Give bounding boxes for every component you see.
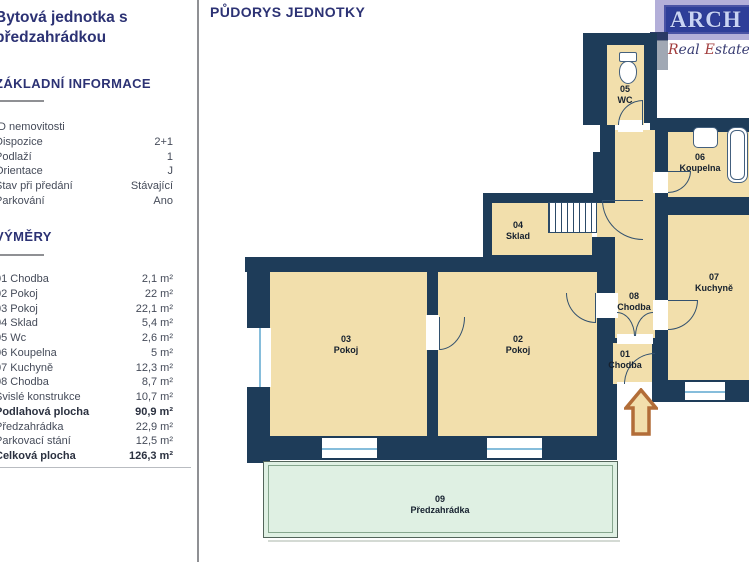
page: Bytová jednotka s předzahrádkou ZÁKLADNÍ… (0, 0, 749, 562)
info-row: OrientaceJ (0, 164, 173, 179)
door-gap (653, 172, 668, 193)
vertical-divider (197, 0, 199, 562)
area-row: 01 Chodba2,1 m² (0, 272, 173, 287)
room-label-kitchen: 07Kuchyně (684, 272, 744, 293)
area-row: 04 Sklad5,4 m² (0, 316, 173, 331)
room-label-garden: 09Předzahrádka (380, 494, 500, 515)
stairs (548, 202, 597, 233)
basic-info-heading: ZÁKLADNÍ INFORMACE (0, 76, 195, 91)
info-row: ParkováníAno (0, 194, 173, 209)
areas-table: 01 Chodba2,1 m² 02 Pokoj22 m² 03 Pokoj22… (0, 272, 173, 464)
room-label-storage: 04Sklad (488, 220, 548, 241)
basic-info-table: ID nemovitosti Dispozice2+1 Podlaží1 Ori… (0, 120, 173, 209)
bathtub-inner (730, 130, 745, 180)
listing-title-line1: Bytová jednotka s (0, 8, 195, 28)
area-row: 02 Pokoj22 m² (0, 287, 173, 302)
area-row: Předzahrádka22,9 m² (0, 420, 173, 435)
agency-logo: ARCH (664, 5, 749, 34)
room-label-bathroom: 06Koupelna (670, 152, 730, 173)
room-label-wc: 05WC (595, 84, 655, 105)
area-row: 06 Koupelna5 m² (0, 346, 173, 361)
window (322, 438, 377, 458)
area-row: 05 Wc2,6 m² (0, 331, 173, 346)
area-row: 07 Kuchyně12,3 m² (0, 361, 173, 376)
area-row: Svislé konstrukce10,7 m² (0, 390, 173, 405)
heading-underline (0, 100, 44, 102)
listing-title-line2: předzahrádkou (0, 28, 195, 48)
room-kitchen (668, 215, 749, 380)
wall (643, 33, 657, 123)
room-label-02: 02Pokoj (488, 334, 548, 355)
wall (427, 272, 438, 436)
agency-tagline: RealEstateP (668, 42, 749, 58)
info-row: Podlaží1 (0, 150, 173, 165)
room-label-hall-08: 08Chodba (604, 291, 664, 312)
heading-underline (0, 254, 44, 256)
door-gap (426, 315, 439, 350)
page-title: PŮDORYS JEDNOTKY (210, 4, 365, 20)
garden-shadow (268, 540, 620, 542)
toilet-icon (619, 61, 637, 84)
table-bottom-line (0, 467, 191, 468)
info-row: Dispozice2+1 (0, 135, 173, 150)
info-row: ID nemovitosti (0, 120, 173, 135)
wall (245, 257, 617, 272)
info-row: Stav při předáníStávající (0, 179, 173, 194)
area-row-total: Celková plocha126,3 m² (0, 449, 173, 464)
under-stairs (548, 233, 592, 255)
area-row: Parkovací stání12,5 m² (0, 434, 173, 449)
agency-logo-text: ARCH (670, 7, 742, 33)
window (487, 438, 542, 458)
area-row-total-floor: Podlahová plocha90,9 m² (0, 405, 173, 420)
room-label-03: 03Pokoj (316, 334, 376, 355)
window (246, 328, 271, 387)
sidebar: Bytová jednotka s předzahrádkou ZÁKLADNÍ… (0, 0, 198, 562)
wall (592, 237, 617, 274)
area-row: 08 Chodba8,7 m² (0, 375, 173, 390)
wall (660, 197, 749, 215)
window (685, 382, 725, 400)
area-row: 03 Pokoj22,1 m² (0, 302, 173, 317)
wall (247, 436, 617, 460)
listing-title: Bytová jednotka s předzahrádkou (0, 8, 195, 48)
sink-icon (693, 127, 718, 148)
bathtub-icon (727, 127, 748, 183)
room-label-hall-01: 01Chodba (595, 349, 655, 370)
entrance-arrow-icon (624, 388, 658, 436)
areas-heading: VÝMĚRY (0, 229, 195, 244)
